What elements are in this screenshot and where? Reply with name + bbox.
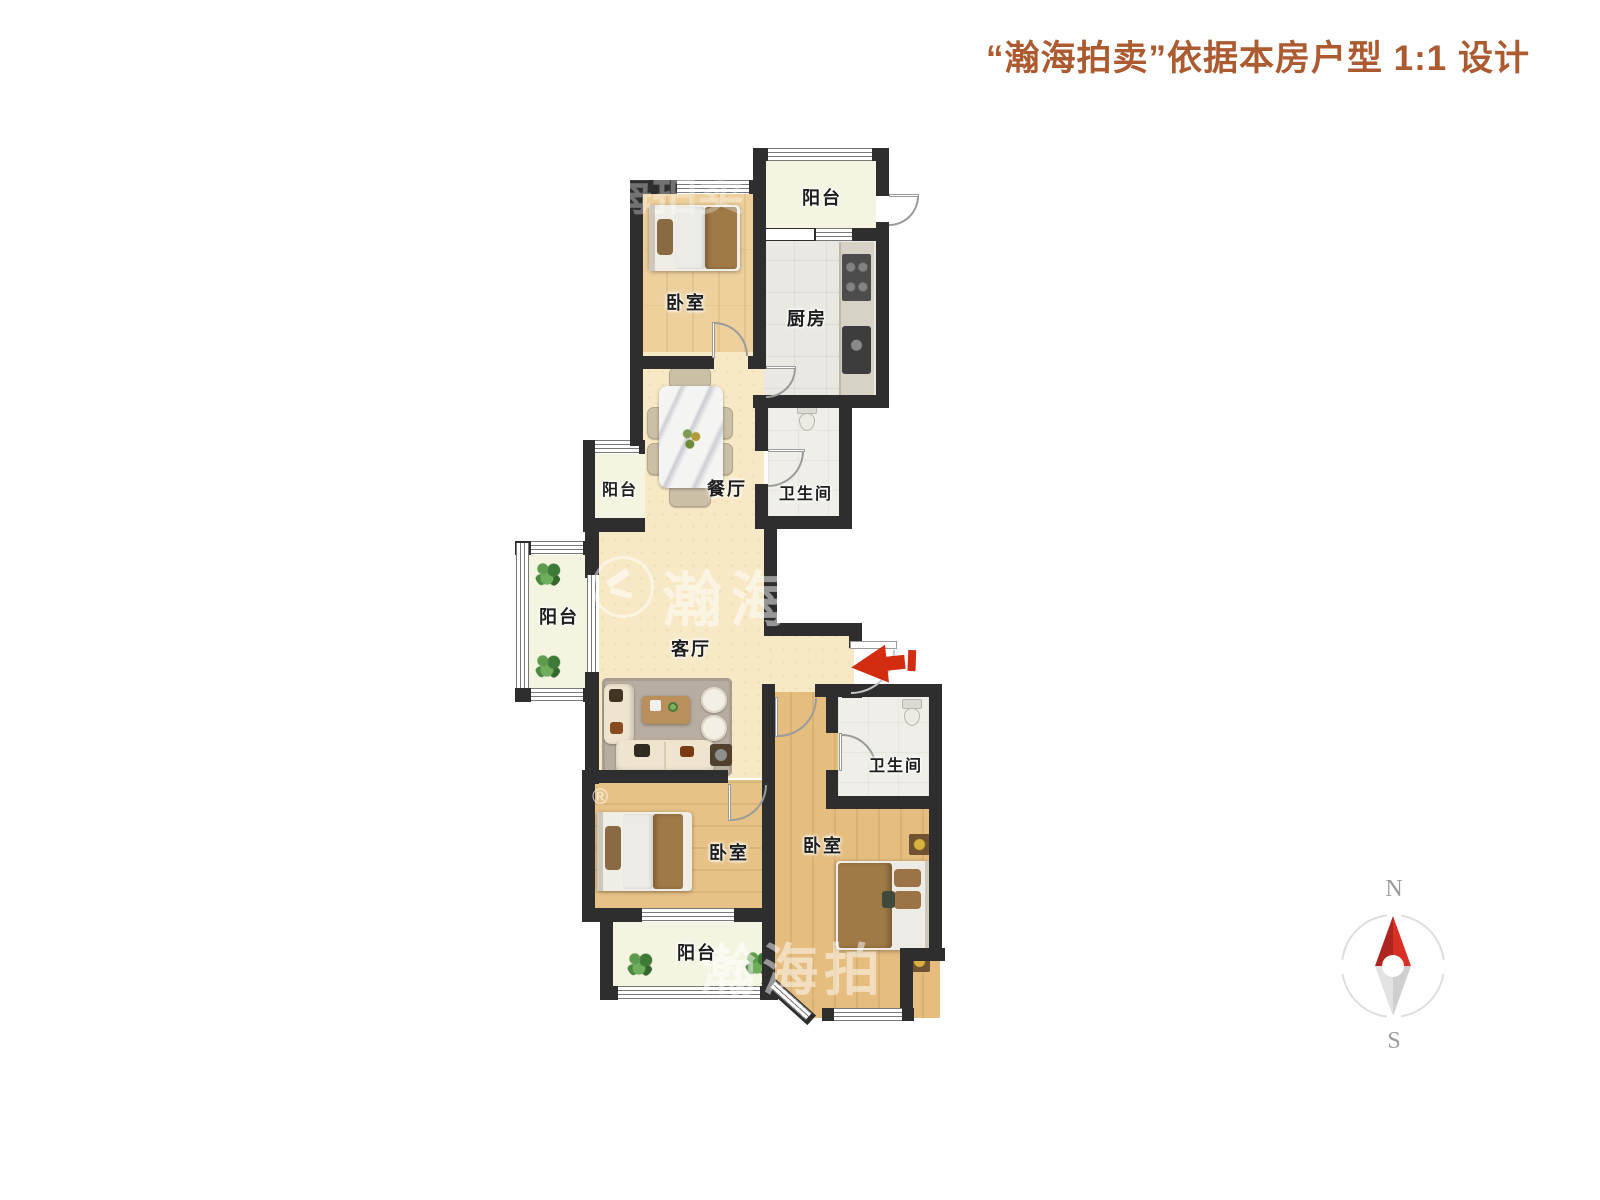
wall-segment bbox=[876, 228, 889, 408]
coffee-table-tray bbox=[650, 700, 661, 711]
compass-north-label: N bbox=[1336, 876, 1452, 903]
sofa-pillow-rust bbox=[680, 746, 694, 757]
wall-segment bbox=[826, 796, 942, 809]
bed-pillow bbox=[605, 826, 621, 870]
compass-south-label: S bbox=[1336, 1028, 1452, 1055]
watermark-text-bottom: 瀚海拍 bbox=[700, 926, 950, 1007]
room-label-balcony-living: 阳台 bbox=[539, 603, 579, 629]
watermark-text-top: 海拍卖 bbox=[606, 158, 758, 224]
wall-segment bbox=[876, 148, 889, 196]
compass-ring-gap bbox=[1439, 960, 1451, 974]
bed-duvet bbox=[623, 814, 653, 889]
window bbox=[834, 1008, 902, 1021]
room-label-bedroom-bottom-left: 卧室 bbox=[709, 839, 749, 865]
window bbox=[531, 541, 583, 555]
wall-segment bbox=[839, 395, 852, 529]
ottoman bbox=[701, 715, 727, 741]
bed-throw bbox=[882, 891, 895, 908]
wall-segment bbox=[582, 770, 728, 783]
coffee-table-plant bbox=[668, 702, 678, 712]
window bbox=[516, 543, 529, 690]
wall-segment bbox=[755, 395, 768, 451]
bed-bottom-left bbox=[597, 812, 692, 891]
floor-entry bbox=[764, 630, 854, 692]
wall-opening bbox=[766, 229, 814, 240]
window bbox=[768, 148, 872, 161]
room-label-kitchen: 厨房 bbox=[787, 305, 827, 331]
potted-plant bbox=[627, 951, 653, 977]
bed-pillow bbox=[894, 869, 921, 887]
dining-chair bbox=[669, 485, 711, 507]
compass-ring-gap bbox=[1335, 960, 1347, 974]
sofa-cushion-line bbox=[664, 742, 666, 772]
potted-plant bbox=[535, 653, 561, 679]
room-label-living: 客厅 bbox=[671, 635, 711, 661]
wall-segment bbox=[826, 697, 838, 733]
wall-segment bbox=[515, 688, 531, 702]
wall-segment bbox=[630, 361, 643, 446]
potted-plant bbox=[535, 561, 561, 587]
door-arc bbox=[889, 196, 919, 226]
watermark-registered-icon: ® bbox=[592, 784, 608, 810]
room-label-bathroom-bottom: 卫生间 bbox=[869, 752, 923, 776]
room-label-balcony-bottom: 阳台 bbox=[677, 939, 717, 965]
wall-segment bbox=[583, 541, 599, 555]
sofa-pillow-dark bbox=[609, 689, 623, 702]
window bbox=[642, 908, 734, 922]
kitchen-sink bbox=[842, 326, 871, 374]
watermark-logo-circle bbox=[592, 556, 654, 618]
compass: N S bbox=[1336, 876, 1452, 1056]
room-label-balcony-dining: 阳台 bbox=[602, 476, 638, 500]
bed-headboard bbox=[597, 812, 603, 891]
compass-needle-icon bbox=[1372, 916, 1414, 1016]
floor-plan: 瀚海 海拍卖 瀚海拍 ® 阳台 厨房 卧室 餐厅 卫生间 阳台 阳台 客厅 卫生… bbox=[0, 0, 1600, 1200]
sofa-pillow-rust bbox=[610, 722, 623, 734]
bed-blanket bbox=[653, 814, 683, 889]
bed-pillow bbox=[894, 891, 921, 909]
wall-segment bbox=[929, 684, 942, 809]
entry-arrow-icon bbox=[847, 636, 922, 691]
room-label-bedroom-bottom-right: 卧室 bbox=[803, 832, 843, 858]
nightstand bbox=[909, 834, 930, 855]
side-table-lamp bbox=[715, 749, 727, 761]
kitchen-stove bbox=[842, 254, 871, 301]
table-centerpiece bbox=[679, 424, 703, 452]
window bbox=[531, 688, 583, 702]
ottoman bbox=[701, 687, 727, 713]
room-label-dining: 餐厅 bbox=[707, 475, 747, 501]
watermark-text-center: 瀚海 bbox=[662, 552, 812, 639]
room-label-balcony-top: 阳台 bbox=[802, 184, 842, 210]
room-label-bathroom-top: 卫生间 bbox=[779, 480, 833, 504]
window bbox=[816, 228, 852, 241]
wall-segment bbox=[762, 684, 775, 924]
wall-segment bbox=[583, 688, 599, 702]
room-label-bedroom-top: 卧室 bbox=[666, 289, 706, 315]
sofa-pillow-dark bbox=[634, 744, 650, 757]
bed-pillow bbox=[657, 219, 673, 255]
